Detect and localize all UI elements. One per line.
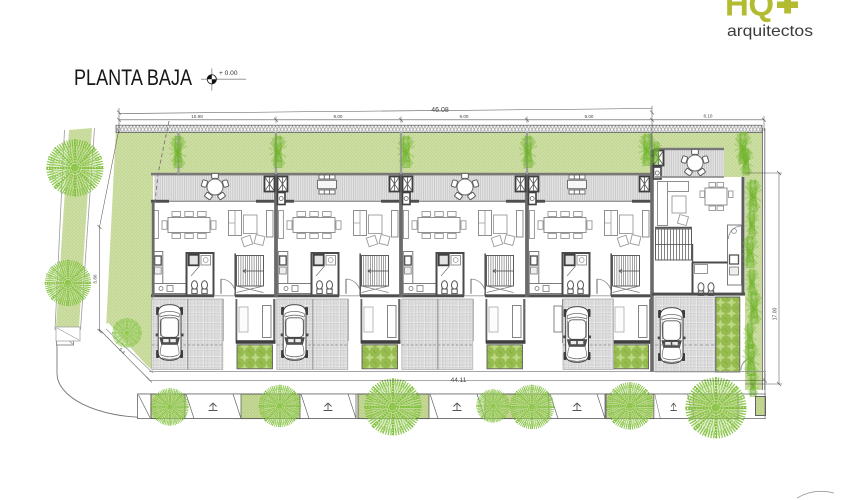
svg-text:44.11: 44.11 [451,377,467,384]
svg-text:8.10: 8.10 [704,114,713,119]
svg-text:17.00: 17.00 [773,308,779,321]
svg-text:HQ: HQ [725,0,774,23]
svg-text:10.98: 10.98 [191,114,203,119]
svg-text:9.00: 9.00 [334,114,343,119]
svg-text:5.80: 5.80 [93,274,98,283]
svg-text:PLANTA BAJA: PLANTA BAJA [74,65,192,90]
svg-text:9.00: 9.00 [460,114,469,119]
svg-text:arquitectos: arquitectos [727,23,813,40]
svg-text:+ 0.00: + 0.00 [219,70,238,77]
svg-text:9.00: 9.00 [585,114,594,119]
svg-text:46.08: 46.08 [431,107,449,114]
